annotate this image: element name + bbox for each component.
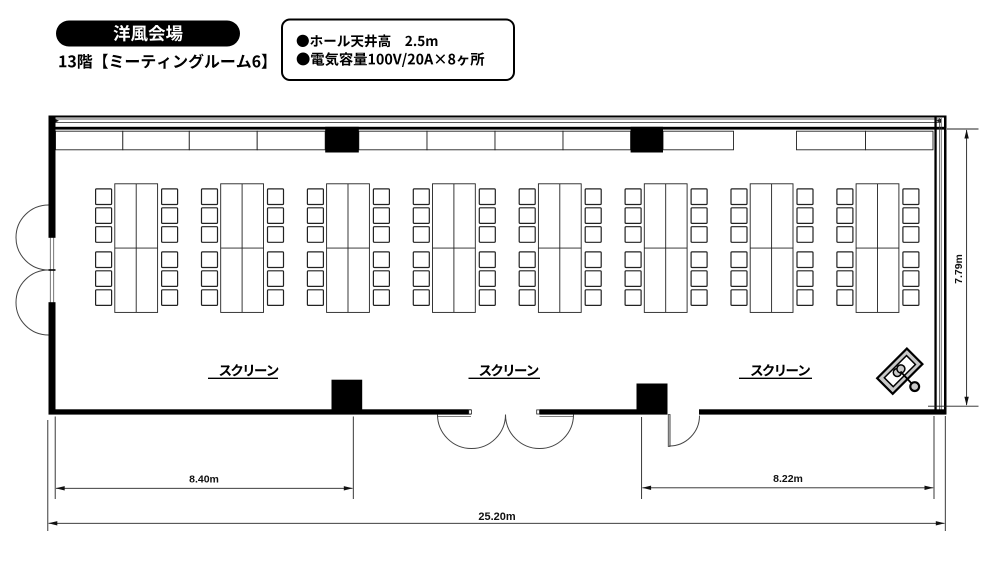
svg-text:7.79m: 7.79m bbox=[953, 254, 965, 284]
svg-text:25.20m: 25.20m bbox=[478, 511, 516, 523]
svg-text:8.40m: 8.40m bbox=[189, 474, 219, 486]
svg-text:8.22m: 8.22m bbox=[773, 473, 803, 485]
